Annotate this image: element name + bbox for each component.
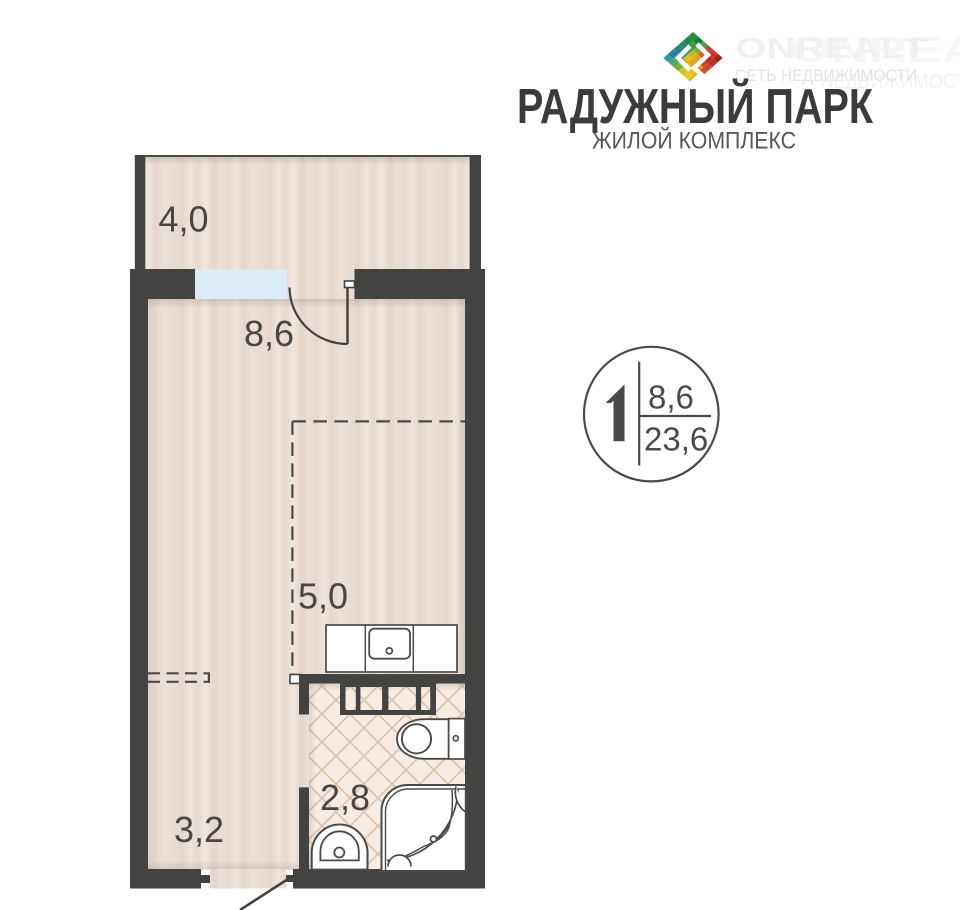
svg-text:8,6: 8,6 [244, 313, 294, 354]
svg-text:ЖИЛОЙ КОМПЛЕКС: ЖИЛОЙ КОМПЛЕКС [592, 127, 796, 155]
svg-text:8,6: 8,6 [648, 379, 694, 416]
svg-text:3,2: 3,2 [174, 809, 224, 850]
svg-text:5,0: 5,0 [298, 576, 348, 617]
svg-text:4,0: 4,0 [159, 199, 209, 240]
svg-text:23,6: 23,6 [644, 421, 708, 458]
svg-text:ONREALT: ONREALT [735, 33, 927, 65]
svg-text:2,8: 2,8 [320, 777, 370, 818]
svg-text:РАДУЖНЫЙ ПАРК: РАДУЖНЫЙ ПАРК [517, 79, 873, 134]
